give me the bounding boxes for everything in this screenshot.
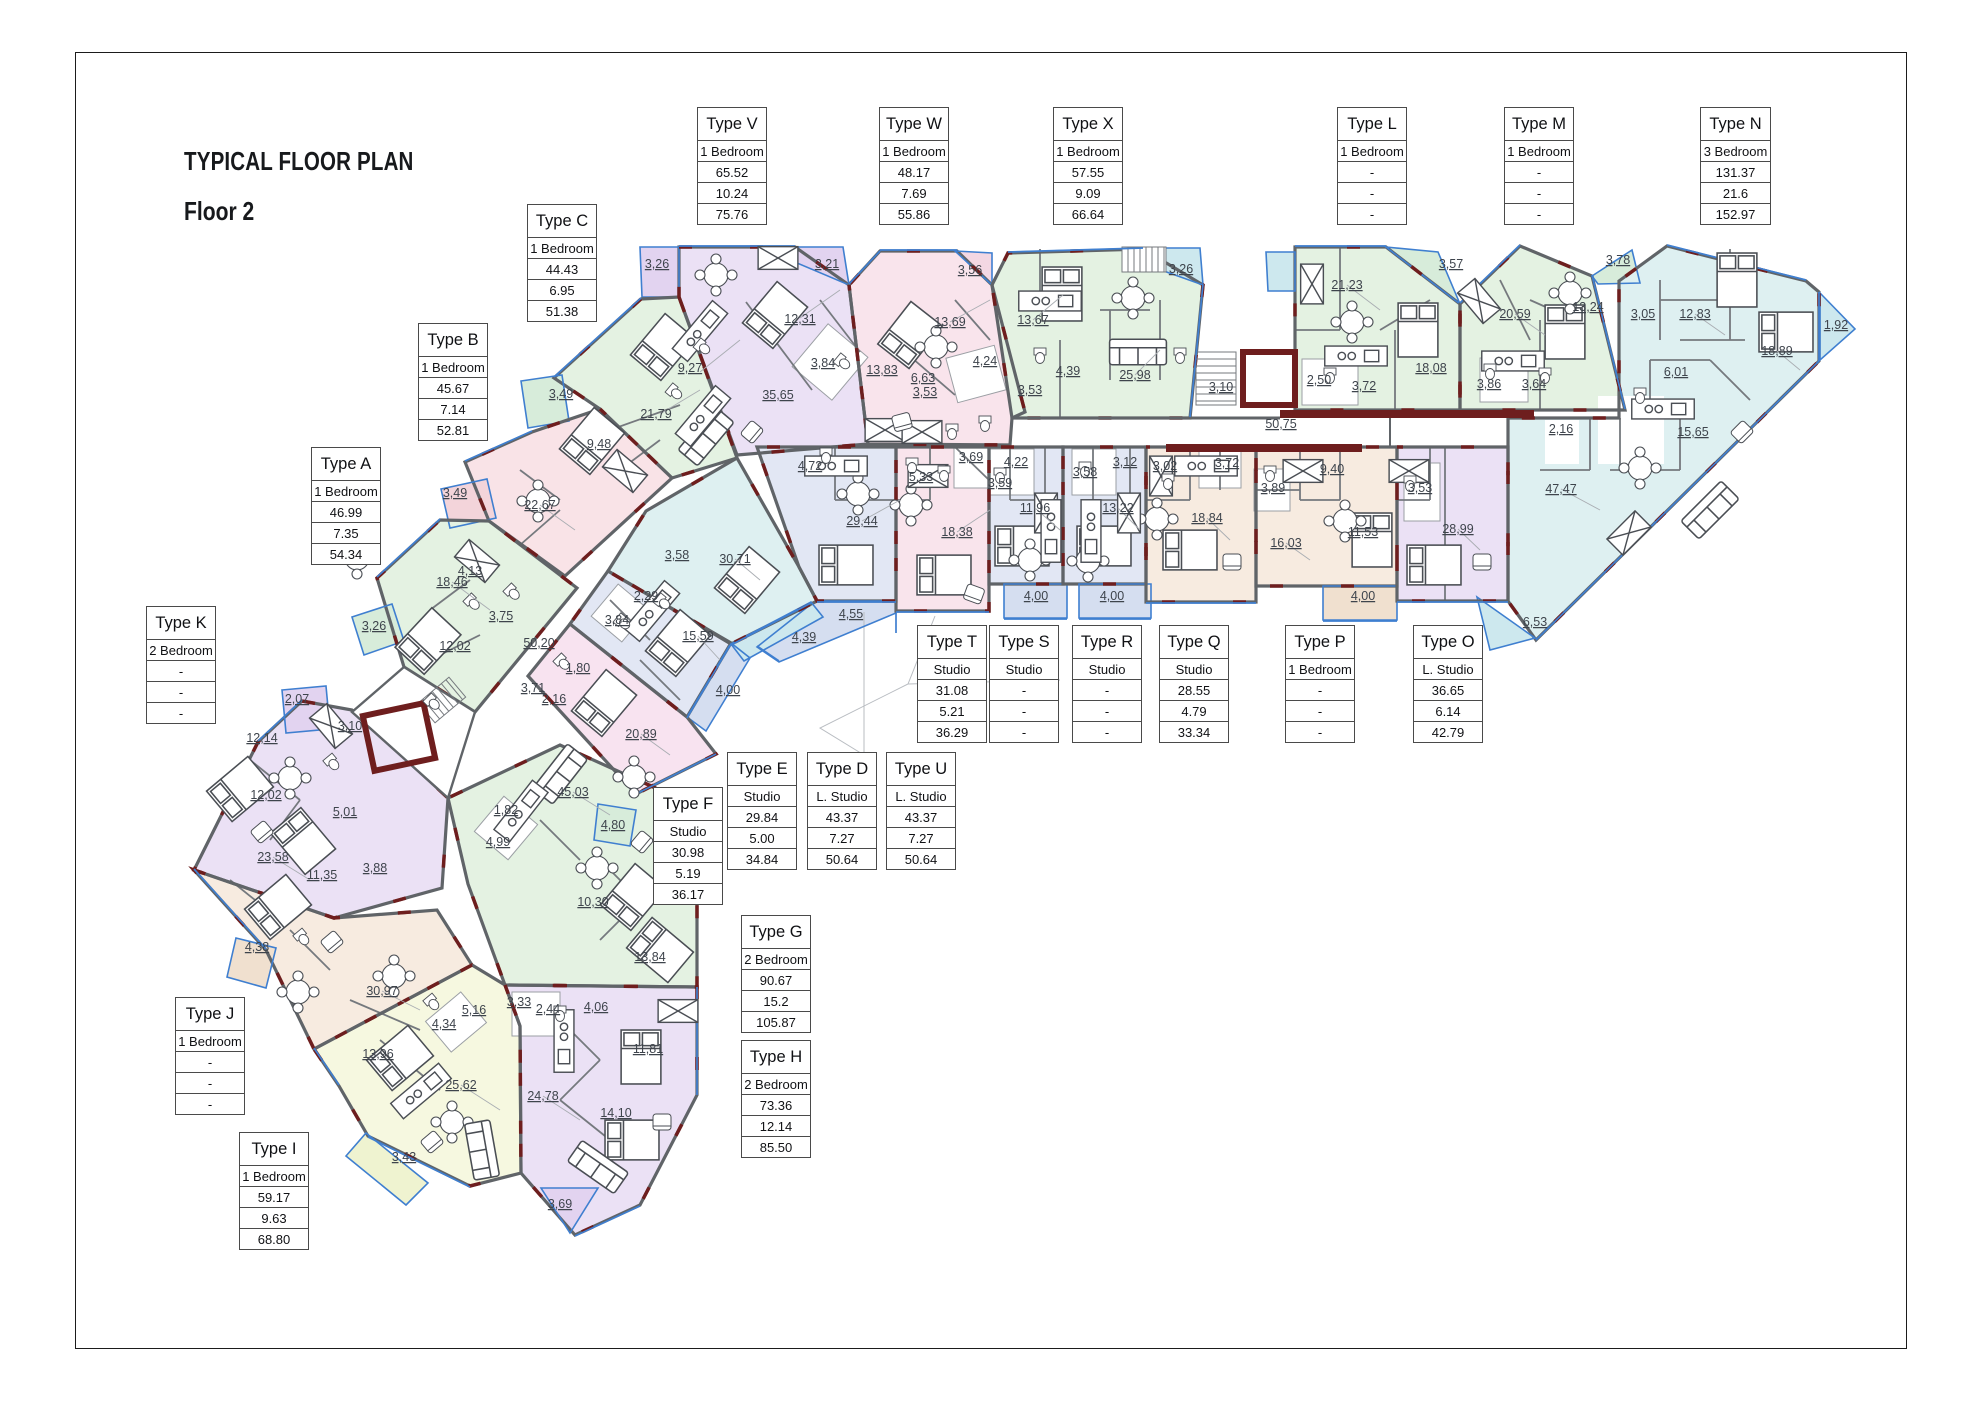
svg-text:4,24: 4,24 — [973, 354, 997, 368]
svg-text:4,00: 4,00 — [1100, 589, 1124, 603]
svg-text:6,63: 6,63 — [911, 371, 935, 385]
svg-text:4,06: 4,06 — [584, 1000, 608, 1014]
svg-text:13,83: 13,83 — [866, 363, 897, 377]
svg-text:3,33: 3,33 — [507, 995, 531, 1009]
svg-text:4,00: 4,00 — [1024, 589, 1048, 603]
svg-text:4,22: 4,22 — [1004, 455, 1028, 469]
svg-text:15,65: 15,65 — [1677, 425, 1708, 439]
svg-text:1,82: 1,82 — [494, 803, 518, 817]
svg-text:3,75: 3,75 — [489, 609, 513, 623]
svg-text:50,20: 50,20 — [523, 636, 554, 650]
svg-text:2,16: 2,16 — [1549, 422, 1573, 436]
svg-text:35,65: 35,65 — [762, 388, 793, 402]
svg-text:3,72: 3,72 — [1352, 379, 1376, 393]
svg-text:18,46: 18,46 — [436, 575, 467, 589]
svg-text:4,34: 4,34 — [432, 1017, 456, 1031]
svg-text:13,96: 13,96 — [362, 1047, 393, 1061]
svg-text:5,33: 5,33 — [909, 470, 933, 484]
svg-text:2,29: 2,29 — [634, 589, 658, 603]
svg-text:3,05: 3,05 — [1631, 307, 1655, 321]
svg-text:20,59: 20,59 — [1499, 307, 1530, 321]
svg-text:3,58: 3,58 — [665, 548, 689, 562]
svg-text:22,67: 22,67 — [524, 498, 555, 512]
svg-text:3,10: 3,10 — [1209, 380, 1233, 394]
svg-text:3,49: 3,49 — [443, 486, 467, 500]
svg-text:6,01: 6,01 — [1664, 365, 1688, 379]
svg-text:6,53: 6,53 — [1523, 615, 1547, 629]
svg-text:12,14: 12,14 — [246, 731, 277, 745]
svg-text:3,12: 3,12 — [1113, 455, 1137, 469]
svg-text:13,69: 13,69 — [934, 315, 965, 329]
svg-text:30,97: 30,97 — [366, 984, 397, 998]
svg-text:4,55: 4,55 — [839, 607, 863, 621]
svg-text:50,75: 50,75 — [1265, 417, 1296, 431]
svg-text:3,69: 3,69 — [548, 1197, 572, 1211]
svg-text:9,27: 9,27 — [678, 361, 702, 375]
svg-text:25,62: 25,62 — [445, 1078, 476, 1092]
svg-text:11,96: 11,96 — [1020, 501, 1050, 515]
svg-text:4,99: 4,99 — [486, 835, 510, 849]
svg-text:21,23: 21,23 — [1331, 278, 1362, 292]
svg-text:3,64: 3,64 — [1522, 377, 1546, 391]
svg-text:4,80: 4,80 — [601, 818, 625, 832]
svg-text:2,44: 2,44 — [536, 1002, 560, 1016]
svg-text:3,84: 3,84 — [605, 613, 629, 627]
svg-text:4,39: 4,39 — [1056, 364, 1080, 378]
svg-text:20,89: 20,89 — [625, 727, 656, 741]
svg-text:12,02: 12,02 — [439, 639, 470, 653]
svg-text:3,53: 3,53 — [913, 385, 937, 399]
svg-text:3,53: 3,53 — [1408, 481, 1432, 495]
svg-text:3,53: 3,53 — [1018, 383, 1042, 397]
svg-text:3,10: 3,10 — [338, 719, 362, 733]
svg-text:3,84: 3,84 — [811, 356, 835, 370]
svg-text:2,50: 2,50 — [1307, 373, 1331, 387]
svg-text:15,59: 15,59 — [682, 629, 713, 643]
svg-text:14,10: 14,10 — [600, 1106, 631, 1120]
svg-text:10,30: 10,30 — [577, 895, 608, 909]
svg-text:18,08: 18,08 — [1415, 361, 1446, 375]
svg-text:16,03: 16,03 — [1270, 536, 1301, 550]
svg-text:9,48: 9,48 — [587, 437, 611, 451]
svg-text:1,80: 1,80 — [566, 661, 590, 675]
svg-text:24,78: 24,78 — [527, 1089, 558, 1103]
svg-text:13,84: 13,84 — [634, 950, 665, 964]
svg-text:28,99: 28,99 — [1442, 522, 1473, 536]
svg-text:47,47: 47,47 — [1545, 482, 1576, 496]
svg-text:12,31: 12,31 — [784, 312, 815, 326]
svg-text:3,88: 3,88 — [363, 861, 387, 875]
svg-text:1,92: 1,92 — [1824, 318, 1848, 332]
svg-text:2,16: 2,16 — [542, 692, 566, 706]
svg-text:3,43: 3,43 — [392, 1150, 416, 1164]
svg-text:13,24: 13,24 — [1572, 300, 1603, 314]
svg-text:3,21: 3,21 — [815, 257, 839, 271]
svg-text:3,56: 3,56 — [958, 263, 982, 277]
svg-text:13,67: 13,67 — [1017, 313, 1048, 327]
svg-text:13,22: 13,22 — [1102, 501, 1133, 515]
svg-text:3,57: 3,57 — [1439, 257, 1463, 271]
svg-text:21,79: 21,79 — [640, 407, 671, 421]
svg-text:18,84: 18,84 — [1191, 511, 1222, 525]
svg-text:5,01: 5,01 — [333, 805, 357, 819]
svg-text:18,89: 18,89 — [1761, 344, 1792, 358]
svg-text:3,69: 3,69 — [959, 450, 983, 464]
svg-text:3,78: 3,78 — [1606, 253, 1630, 267]
svg-text:4,72: 4,72 — [798, 459, 822, 473]
svg-text:23,58: 23,58 — [257, 850, 288, 864]
svg-text:3,26: 3,26 — [645, 257, 669, 271]
svg-text:9,40: 9,40 — [1320, 462, 1344, 476]
svg-text:3,26: 3,26 — [1169, 262, 1193, 276]
svg-text:3,59: 3,59 — [988, 476, 1012, 490]
svg-text:11,35: 11,35 — [307, 868, 337, 882]
svg-text:12,83: 12,83 — [1679, 307, 1710, 321]
svg-text:2,07: 2,07 — [285, 692, 309, 706]
svg-text:3,26: 3,26 — [362, 619, 386, 633]
svg-text:4,39: 4,39 — [792, 630, 816, 644]
svg-text:11,81: 11,81 — [633, 1042, 663, 1056]
svg-text:12,02: 12,02 — [250, 788, 281, 802]
svg-text:4,00: 4,00 — [1351, 589, 1375, 603]
svg-text:5,16: 5,16 — [462, 1003, 486, 1017]
svg-text:4,38: 4,38 — [245, 940, 269, 954]
svg-text:3,86: 3,86 — [1477, 377, 1501, 391]
svg-text:3,02: 3,02 — [1153, 459, 1177, 473]
svg-text:11,53: 11,53 — [1348, 525, 1378, 539]
svg-text:18,38: 18,38 — [941, 525, 972, 539]
svg-text:3,89: 3,89 — [1261, 481, 1285, 495]
svg-text:3,58: 3,58 — [1073, 465, 1097, 479]
svg-text:3,49: 3,49 — [549, 387, 573, 401]
svg-text:3,72: 3,72 — [1215, 456, 1239, 470]
svg-text:45,03: 45,03 — [557, 785, 588, 799]
svg-text:30,71: 30,71 — [719, 552, 750, 566]
svg-text:4,00: 4,00 — [716, 683, 740, 697]
svg-text:25,98: 25,98 — [1119, 368, 1150, 382]
svg-text:29,44: 29,44 — [846, 514, 877, 528]
